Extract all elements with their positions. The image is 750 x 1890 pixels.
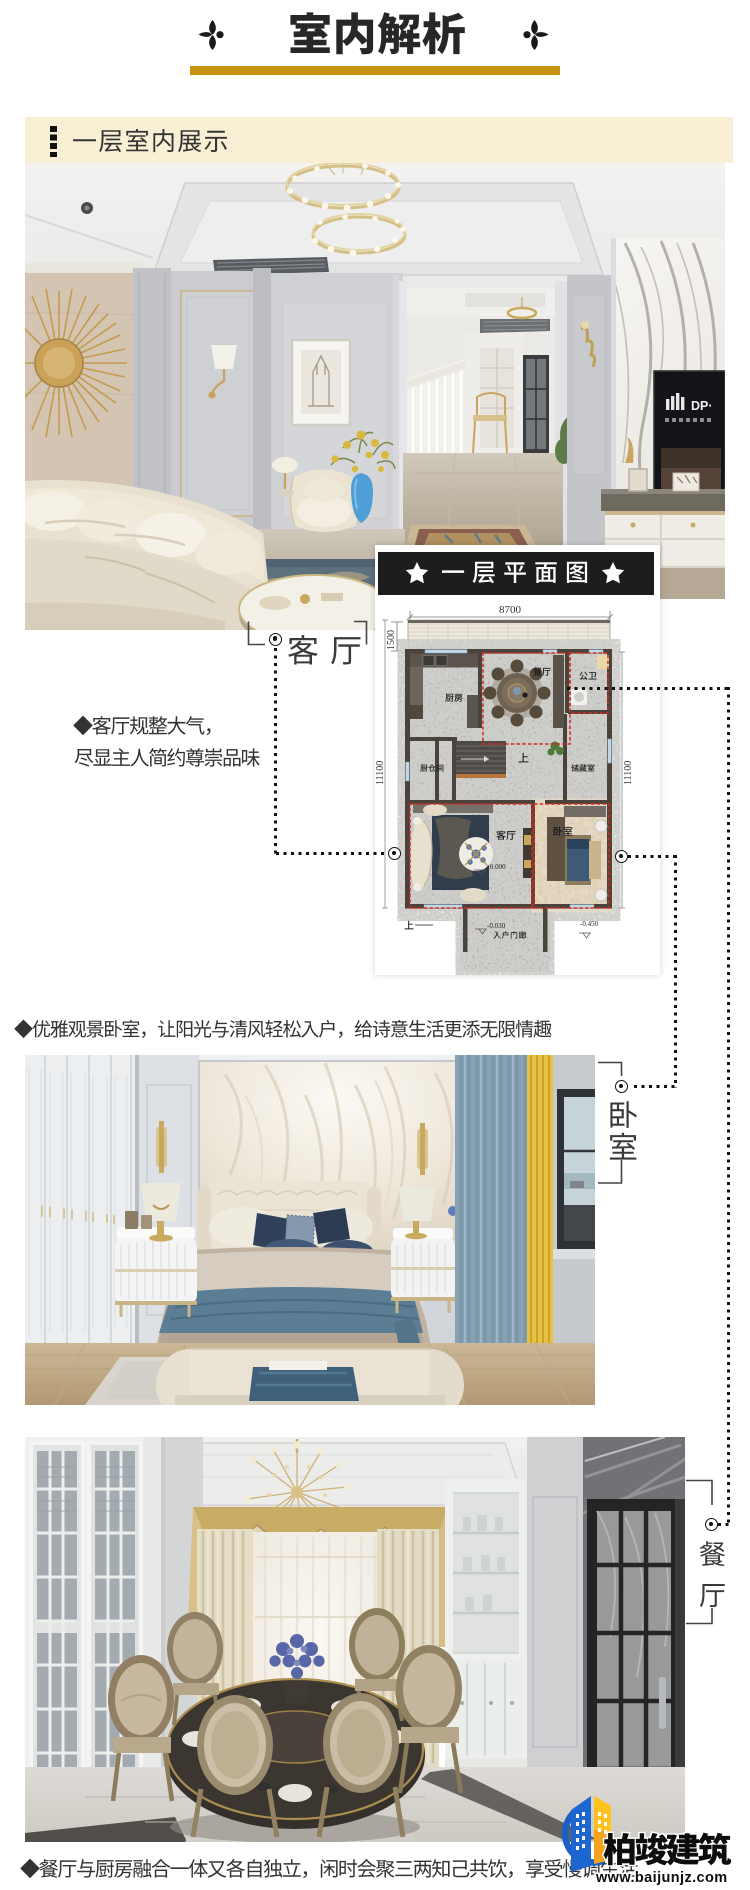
svg-text:-0.030: -0.030: [487, 922, 506, 930]
svg-text:www.baijunjz.com: www.baijunjz.com: [595, 1870, 728, 1886]
svg-text:-0.450: -0.450: [580, 920, 599, 928]
svg-text:1500: 1500: [386, 630, 397, 650]
svg-text:8700: 8700: [499, 604, 522, 616]
svg-text:±0.000: ±0.000: [486, 863, 506, 871]
svg-text:11100: 11100: [623, 761, 634, 785]
svg-text:DP·: DP·: [691, 399, 713, 413]
